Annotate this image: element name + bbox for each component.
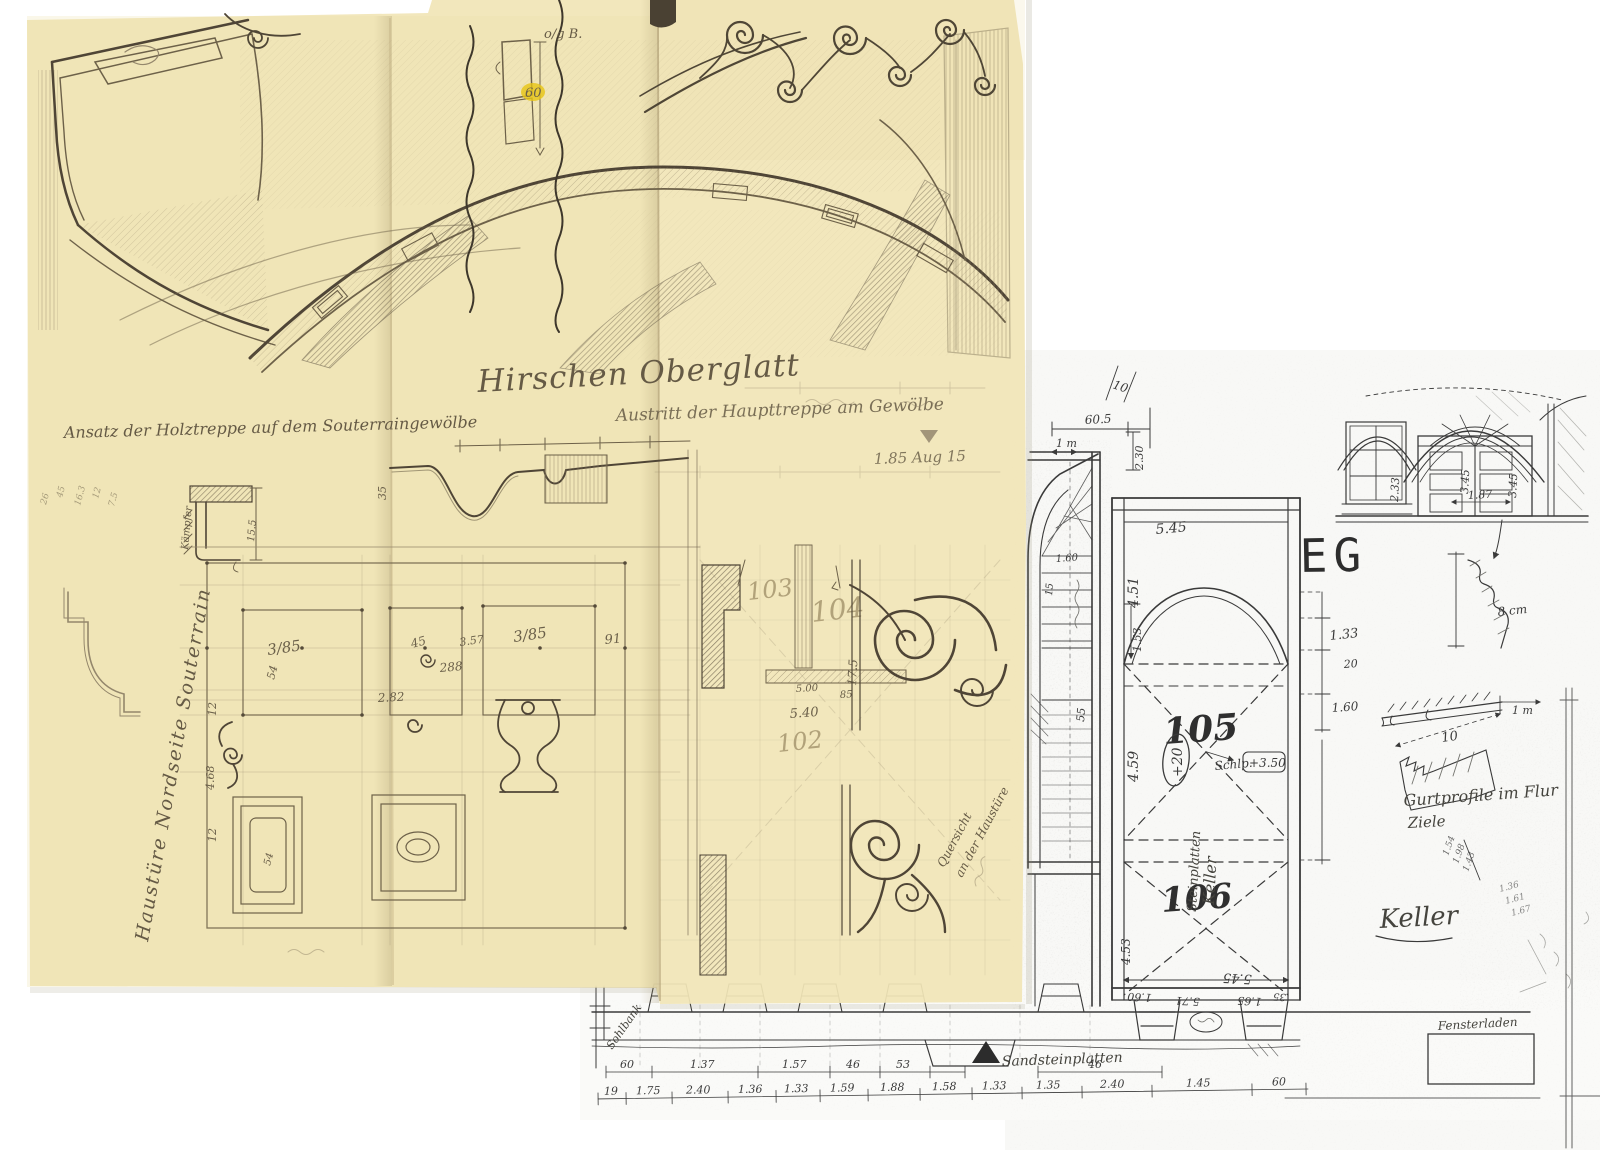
beam-hatched bbox=[766, 670, 906, 683]
dim-v1: 12 bbox=[206, 702, 219, 716]
card-value-60: 60 bbox=[525, 86, 542, 101]
gurt-caption-line2: Ziele bbox=[1406, 812, 1446, 832]
dim-lower: 1.75 bbox=[636, 1084, 661, 1097]
dim-right-160: 1.60 bbox=[1331, 699, 1359, 715]
dim-bottom-545: 5.45 bbox=[1223, 969, 1253, 985]
dim-lower: 1.58 bbox=[932, 1080, 957, 1093]
dim-lower: 1.33 bbox=[982, 1079, 1007, 1092]
dim-bay-35: 35 bbox=[1273, 990, 1286, 1002]
kaempfer-dim: 15.5 bbox=[246, 519, 259, 542]
dim-upper: 60 bbox=[620, 1058, 634, 1071]
facade-dim-345b: 3.45 bbox=[1506, 473, 1520, 498]
dim-5-40: 5.40 bbox=[789, 705, 819, 722]
dim-lower: 1.45 bbox=[1186, 1076, 1211, 1089]
dim-upper: 46 bbox=[845, 1058, 860, 1071]
gurt-width-10: 10 bbox=[1440, 729, 1458, 746]
rail-post bbox=[650, 0, 676, 28]
facade-dim-233: 2.33 bbox=[1388, 477, 1402, 503]
floor-label-eg: EG bbox=[1299, 528, 1367, 583]
dim-4-53: 4.53 bbox=[1119, 938, 1133, 966]
dim-upper: 46 bbox=[1087, 1058, 1102, 1071]
dim-1m-stair: 1 m bbox=[1056, 437, 1077, 450]
dim-lower: 2.40 bbox=[685, 1083, 711, 1096]
dim-2-30: 2.30 bbox=[1133, 446, 1146, 472]
keller-heading: Keller bbox=[1378, 901, 1461, 935]
dim-arch-rise: 1.53 bbox=[1131, 628, 1144, 653]
dim-right-133: 1.33 bbox=[1329, 626, 1359, 644]
dim-lower: 1.35 bbox=[1036, 1078, 1061, 1091]
dim-upper: 1.57 bbox=[782, 1058, 807, 1071]
room-103-label: 103 bbox=[746, 573, 794, 606]
scanned-architectural-sketch-collage: 60.5 1 m 2.30 10 1.60 15 55 4.53 5.45 bbox=[0, 0, 1600, 1172]
dim-edge-91: 91 bbox=[604, 632, 622, 648]
sheet-shadow-bottom-mid bbox=[660, 1004, 1025, 1009]
dim-step-160: 1.60 bbox=[1055, 552, 1079, 565]
level-note: 1.85 Aug 15 bbox=[874, 447, 967, 468]
profile-dim-35: 35 bbox=[376, 486, 389, 500]
level-badge-text: +20 bbox=[1170, 747, 1186, 777]
level-note-value: +3.50 bbox=[1249, 756, 1286, 770]
dim-right-20: 20 bbox=[1342, 657, 1358, 671]
dim-step-55: 55 bbox=[1074, 707, 1088, 722]
dim-lower: 19 bbox=[604, 1085, 618, 1098]
dim-lower: 1.36 bbox=[738, 1083, 763, 1096]
dim-4-51: 4.51 bbox=[1126, 577, 1142, 609]
dim-17-5: 17.5 bbox=[845, 659, 860, 686]
dim-lower: 2.40 bbox=[1099, 1078, 1125, 1091]
dim-5-00: 5.00 bbox=[796, 683, 819, 695]
dim-width-282: 2.82 bbox=[376, 690, 404, 705]
dim-ring-288: 288 bbox=[438, 659, 463, 675]
dim-lower: 1.33 bbox=[784, 1082, 809, 1095]
facade-dim-187: 1.87 bbox=[1467, 488, 1492, 502]
dim-v3: 12 bbox=[206, 828, 219, 842]
dim-lower: 1.88 bbox=[880, 1081, 905, 1094]
dim-v2: 4.68 bbox=[204, 766, 217, 792]
dim-85: 85 bbox=[840, 689, 853, 701]
room-105-label: 105 bbox=[1162, 706, 1240, 753]
gurt-scale-1m: 1 m bbox=[1512, 704, 1533, 717]
sheet-shadow-right bbox=[1026, 0, 1032, 1004]
sketch-canvas: 60.5 1 m 2.30 10 1.60 15 55 4.53 5.45 bbox=[0, 0, 1600, 1172]
dim-lower: 60 bbox=[1272, 1075, 1286, 1088]
dim-bay-160: 1.60 bbox=[1127, 990, 1152, 1004]
dim-top-545: 5.45 bbox=[1155, 519, 1188, 538]
dim-4-59: 4.59 bbox=[1126, 751, 1142, 783]
sheet-shadow-bottom-left bbox=[30, 987, 657, 993]
card-note: o/g B. bbox=[544, 27, 582, 42]
scan-noise-right bbox=[1460, 700, 1600, 1010]
dim-upper: 53 bbox=[896, 1058, 910, 1071]
dim-lower: 1.59 bbox=[830, 1081, 855, 1094]
dim-step-15: 15 bbox=[1044, 583, 1056, 597]
room-104-label: 104 bbox=[809, 591, 866, 629]
dim-upper: 1.37 bbox=[690, 1058, 715, 1071]
room-102-label: 102 bbox=[776, 725, 824, 758]
dim-60-5: 60.5 bbox=[1084, 412, 1111, 427]
